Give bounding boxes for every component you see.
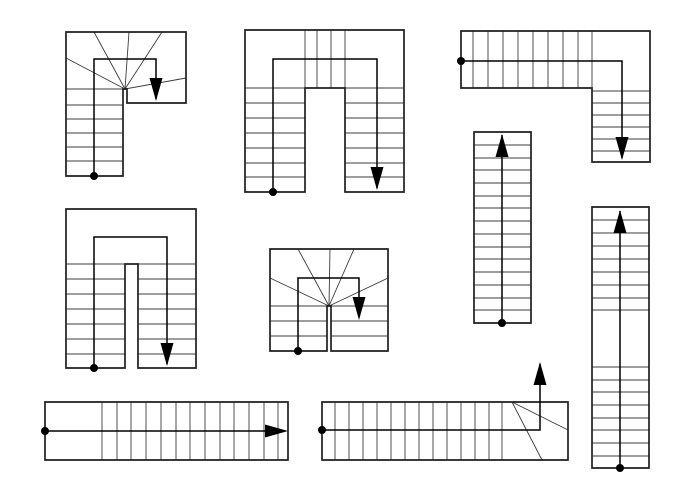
start-dot xyxy=(498,319,506,327)
stair-plan-sheet xyxy=(0,0,700,500)
start-dot xyxy=(457,57,465,65)
start-dot xyxy=(294,347,302,355)
start-dot xyxy=(90,172,98,180)
start-dot xyxy=(41,427,49,435)
sheet-background xyxy=(0,0,700,500)
start-dot xyxy=(616,464,624,472)
stair-plan-diagram xyxy=(0,0,700,500)
start-dot xyxy=(90,364,98,372)
start-dot xyxy=(269,188,277,196)
start-dot xyxy=(318,426,326,434)
